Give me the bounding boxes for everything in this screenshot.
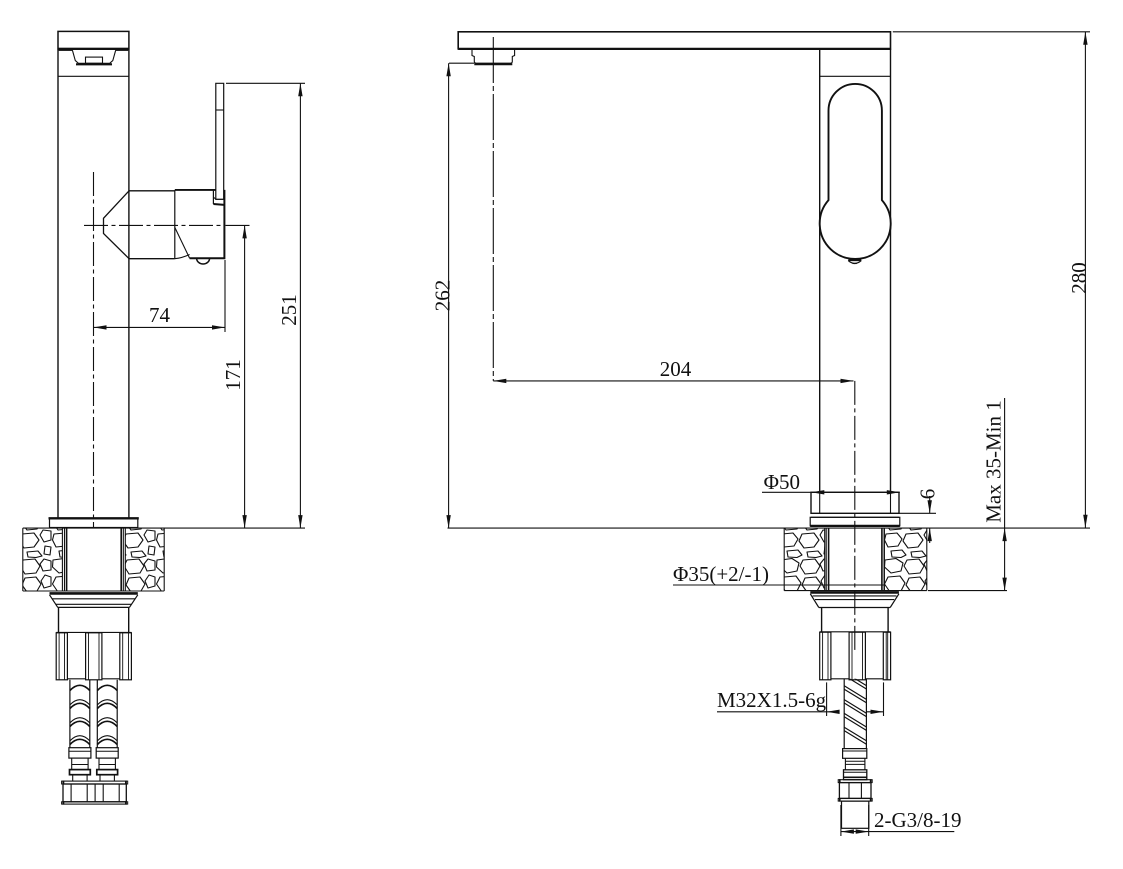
svg-text:251: 251: [277, 294, 301, 326]
svg-text:171: 171: [221, 359, 245, 391]
svg-text:2-G3/8-19: 2-G3/8-19: [874, 808, 962, 832]
svg-text:204: 204: [660, 357, 692, 381]
svg-text:Φ35(+2/-1): Φ35(+2/-1): [673, 562, 769, 586]
svg-text:74: 74: [149, 303, 171, 327]
svg-text:262: 262: [431, 280, 455, 312]
svg-text:6: 6: [916, 489, 940, 500]
svg-text:280: 280: [1067, 262, 1091, 294]
svg-text:Φ50: Φ50: [764, 470, 800, 494]
svg-text:M32X1.5-6g: M32X1.5-6g: [717, 688, 827, 712]
svg-text:Max 35-Min 1: Max 35-Min 1: [982, 400, 1006, 523]
